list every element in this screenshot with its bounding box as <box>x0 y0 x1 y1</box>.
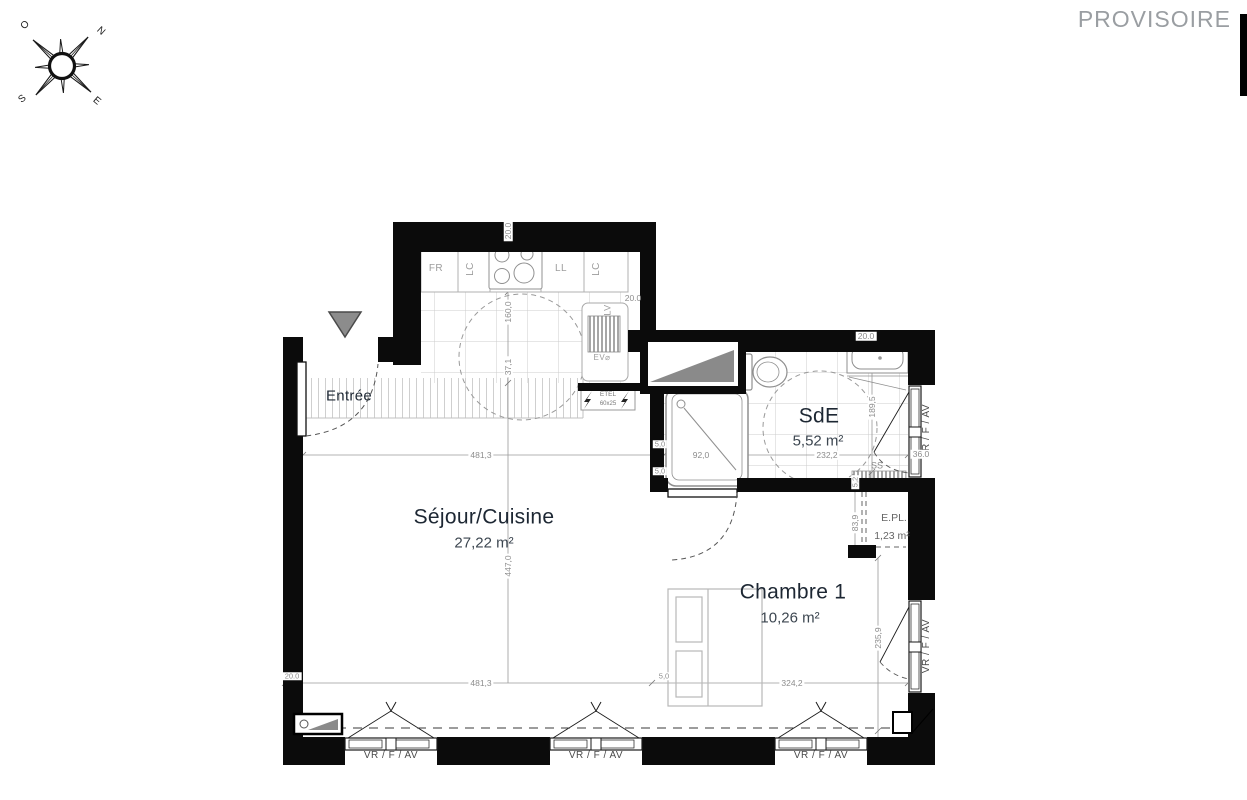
dim-wall-left: 20.0 <box>283 672 302 680</box>
dim-wall-top-right: 20.0 <box>856 332 877 341</box>
dim-partition-c: 5,0 <box>657 672 671 680</box>
dim-chambre-width: 324,2 <box>779 679 804 688</box>
etel-label: ETEL <box>600 392 616 399</box>
dim-sde-width: 232,2 <box>814 451 839 460</box>
dim-chambre-height: 235,9 <box>874 625 883 650</box>
dim-wall-top: 20.0 <box>504 221 513 242</box>
window-label: VR / F / AV <box>569 751 623 761</box>
duct-icon <box>648 342 738 386</box>
dim-sejour-width-b: 481,3 <box>468 679 493 688</box>
washer-label: LL <box>555 264 567 274</box>
towel-dryer-label: SS <box>871 462 883 471</box>
dim-sejour-height: 447,0 <box>504 553 513 578</box>
dim-window-recess: 36.0 <box>911 450 932 459</box>
room-area-epl: 1,23 m² <box>874 531 910 542</box>
dim-sde-height: 189,5 <box>868 394 877 419</box>
dim-epl-height: 83,9 <box>851 513 860 534</box>
room-label-sde: SdE <box>799 406 840 427</box>
room-label-epl: E.PL. <box>881 513 907 524</box>
room-area-sejour: 27,22 m² <box>454 536 513 551</box>
room-area-chambre: 10,26 m² <box>760 611 819 626</box>
dishwasher-label: LV <box>604 304 613 315</box>
window-label: VR / F / AV <box>364 751 418 761</box>
fridge-label: FR <box>429 264 443 274</box>
dim-kitchen-width: 160,0 <box>504 299 513 324</box>
dim-kitchen-offset: 37,1 <box>504 357 513 378</box>
compass-o-label: O <box>19 18 32 31</box>
window-label: VR / F / AV <box>922 619 932 673</box>
dim-partition-a: 5,0 <box>653 440 667 448</box>
page-edge-bar <box>1240 14 1247 96</box>
entrance-arrow-icon <box>329 312 361 337</box>
dim-partition-b: 5,0 <box>653 467 667 475</box>
compass-e-label: E <box>91 95 103 108</box>
towel-radiator-icon <box>852 471 906 479</box>
etel-size-label: 60x25 <box>600 401 616 407</box>
window-label: VR / F / AV <box>794 751 848 761</box>
sink-label: EV⌀ <box>594 354 611 362</box>
compass-n-label: N <box>94 25 107 38</box>
dim-wall-right-kitchen: 20.0 <box>625 294 642 303</box>
bedroom-door <box>668 489 737 560</box>
compass-s-label: S <box>16 93 28 106</box>
wall-niche <box>294 714 342 734</box>
room-label-entree: Entrée <box>326 389 372 404</box>
cabinet-label: LC <box>466 262 476 276</box>
room-label-chambre: Chambre 1 <box>740 582 847 603</box>
floor-plan-page: N O S E PROVISOIRE Entrée Séjour/Cuisine… <box>0 0 1247 800</box>
room-label-sejour: Séjour/Cuisine <box>414 507 555 528</box>
watermark-provisoire: PROVISOIRE <box>1078 6 1231 33</box>
shower-icon <box>666 389 748 486</box>
compass-icon: N O S E <box>16 18 107 107</box>
room-area-sde: 5,52 m² <box>793 434 844 449</box>
dim-sejour-width: 481,3 <box>468 451 493 460</box>
bed-icon <box>668 589 762 706</box>
floor-plan-drawing: N O S E <box>0 0 1247 800</box>
dim-epl-wall: 5,2 <box>851 475 859 489</box>
cabinet-label: LC <box>592 262 602 276</box>
dim-shower-width: 92,0 <box>691 451 712 460</box>
